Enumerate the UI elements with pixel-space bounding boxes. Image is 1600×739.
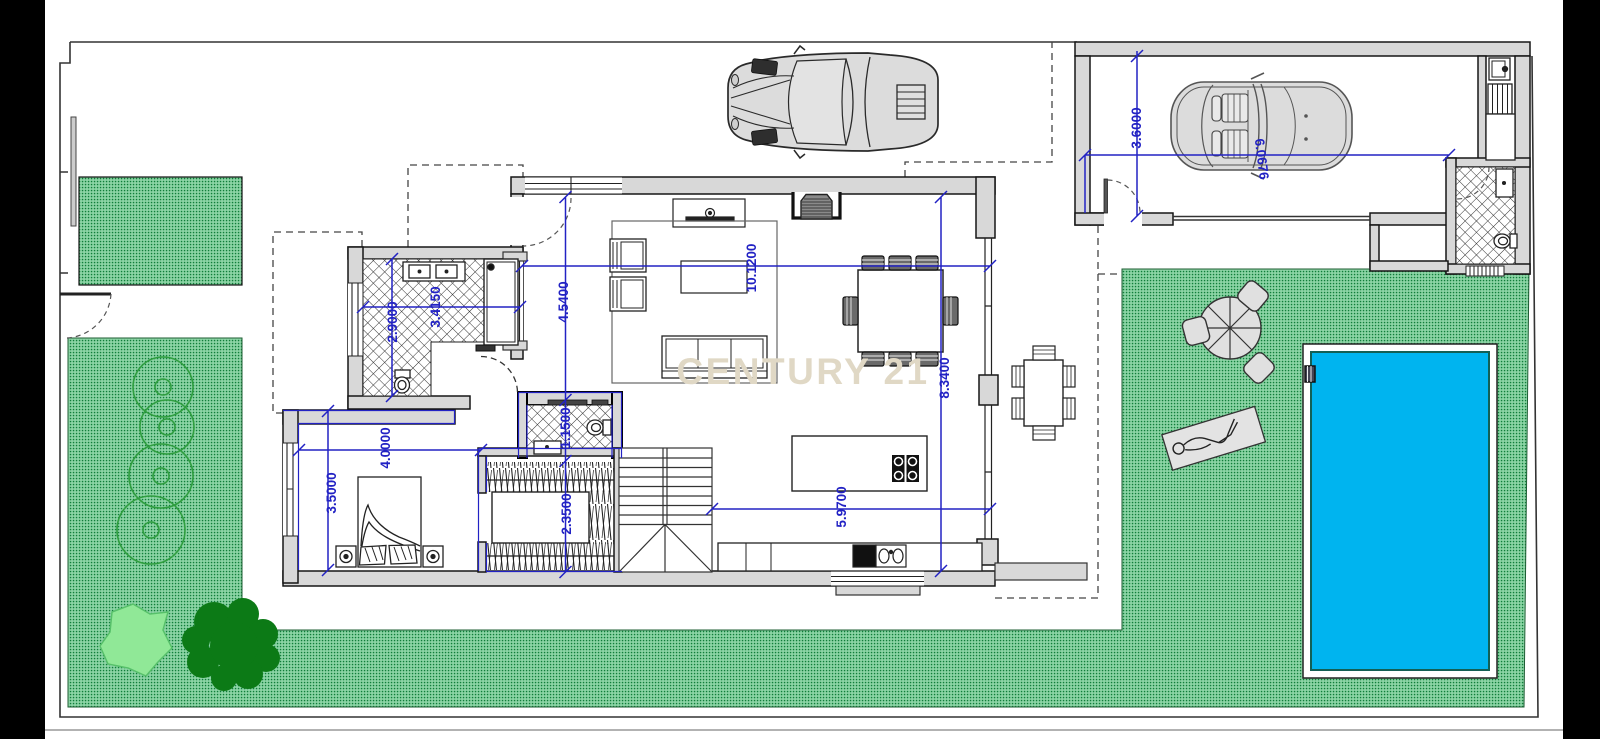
- svg-text:3.5000: 3.5000: [324, 472, 339, 513]
- svg-text:8.3400: 8.3400: [937, 357, 952, 398]
- svg-text:4.0000: 4.0000: [378, 427, 393, 468]
- svg-text:4.5400: 4.5400: [556, 281, 571, 322]
- svg-text:2.3500: 2.3500: [559, 493, 574, 534]
- svg-text:2.9000: 2.9000: [385, 301, 400, 342]
- svg-text:3.4150: 3.4150: [428, 286, 443, 327]
- svg-text:10.1200: 10.1200: [744, 244, 759, 293]
- svg-text:CENTURY 21: CENTURY 21: [676, 351, 929, 392]
- svg-text:1.1500: 1.1500: [558, 407, 573, 448]
- svg-text:5.9700: 5.9700: [834, 486, 849, 527]
- svg-text:3.6000: 3.6000: [1129, 107, 1144, 148]
